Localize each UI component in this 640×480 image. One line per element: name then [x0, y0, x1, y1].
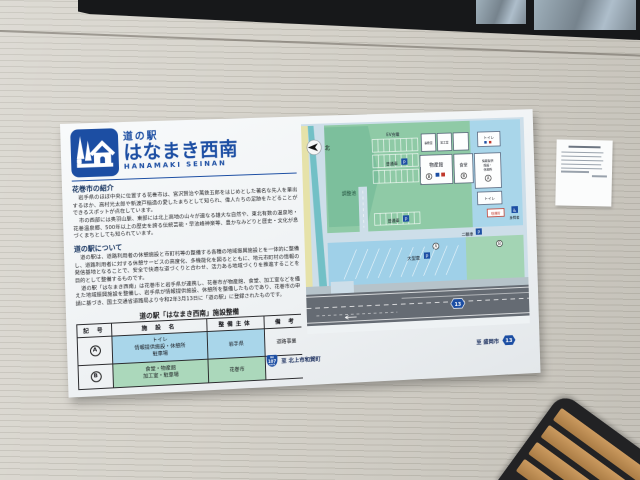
bussankan-label: 物産館 [429, 161, 443, 168]
notice-line [561, 171, 589, 173]
svg-text:13: 13 [455, 302, 462, 308]
svg-text:P: P [403, 160, 406, 166]
office-label: 事務室 [424, 140, 432, 145]
smoking-label: 喫煙所 [491, 211, 501, 216]
svg-text:A: A [487, 176, 490, 181]
notice-line [561, 155, 601, 157]
brand-block: 道の駅 はなまき西南 HANAMAKI SEINAN [123, 129, 239, 170]
svg-text:北: 北 [325, 144, 331, 152]
svg-text:ROUTE: ROUTE [269, 364, 275, 366]
svg-text:107: 107 [268, 359, 277, 364]
direction-east: 至 盛岡市 13 [476, 334, 517, 349]
svg-text:♿: ♿ [513, 208, 517, 214]
notice-line [592, 176, 607, 178]
large-parking-lot [328, 237, 467, 286]
marker-b: B [90, 371, 101, 383]
facility-table: 記 号 施 設 名 整備主体 備 考 A トイレ 情報提供施設・休憩所 駐車場 … [76, 313, 303, 390]
route-13-badge-icon: 13 [502, 334, 517, 347]
marker-a: A [89, 345, 100, 356]
svg-text:B: B [462, 173, 465, 178]
window-glass-right [534, 0, 636, 30]
sign-text-column: 道の駅 はなまき西南 HANAMAKI SEINAN 花巻市の紹介 岩手県のほぼ… [70, 122, 303, 391]
cell-symbol: A [77, 336, 113, 366]
svg-text:13: 13 [506, 338, 513, 344]
svg-text:P: P [477, 230, 480, 236]
toilet-lower-label: トイレ [484, 196, 495, 201]
michinoeki-logo-icon [70, 128, 119, 177]
sign-board: 道の駅 はなまき西南 HANAMAKI SEINAN 花巻市の紹介 岩手県のほぼ… [60, 109, 541, 398]
cell-entity: 花巻市 [208, 356, 266, 383]
notice-paper [555, 139, 612, 206]
toilet-top-label: トイレ [483, 135, 494, 140]
notice-line [561, 152, 603, 154]
notice-title-line [568, 146, 600, 149]
direction-east-label: 至 盛岡市 [476, 337, 499, 346]
photo-scene: 道の駅 はなまき西南 HANAMAKI SEINAN 花巻市の紹介 岩手県のほぼ… [0, 0, 640, 480]
direction-west-label: 至 北上市和賀町 [281, 354, 321, 364]
svg-text:B: B [498, 241, 501, 246]
cell-facility: 食堂・物産館 加工室・駐車場 [113, 359, 209, 388]
svg-text:身障者: 身障者 [509, 215, 520, 220]
section-city-intro: 花巻市の紹介 岩手県のほぼ中央に位置する花巻市は、宮沢賢治や萬鉄五郎をはじめとし… [72, 176, 299, 241]
notice-line [561, 163, 601, 165]
processing-label: 加工室 [440, 139, 448, 144]
cell-symbol: B [78, 364, 113, 390]
notice-line [561, 167, 602, 169]
info-label: 休憩所 [483, 166, 492, 171]
sign-header: 道の駅 はなまき西南 HANAMAKI SEINAN [70, 122, 296, 177]
window-glass-left [476, 0, 526, 24]
green-parking-lot [466, 235, 525, 280]
section-about-station: 道の駅について 道の駅は、道路利用者の休憩施設と市町村等の整備する各種の地域振興… [74, 235, 301, 309]
direction-west: 国道 107 ROUTE 至 北上市和賀町 [266, 351, 321, 368]
cell-entity: 岩手県 [207, 329, 265, 359]
bench [444, 392, 640, 480]
entrance [331, 281, 354, 294]
route-13-road-badge: 13 [451, 298, 465, 308]
route-107-shield-icon: 国道 107 ROUTE [266, 353, 279, 368]
svg-text:B: B [428, 174, 431, 179]
pond-label: 調整池 [342, 190, 356, 197]
site-map: 調整池 EV充電 普通車 P 普通車 P [301, 117, 530, 334]
notice-line [561, 159, 603, 161]
svg-text:P: P [405, 217, 408, 223]
svg-text:P: P [426, 254, 429, 260]
